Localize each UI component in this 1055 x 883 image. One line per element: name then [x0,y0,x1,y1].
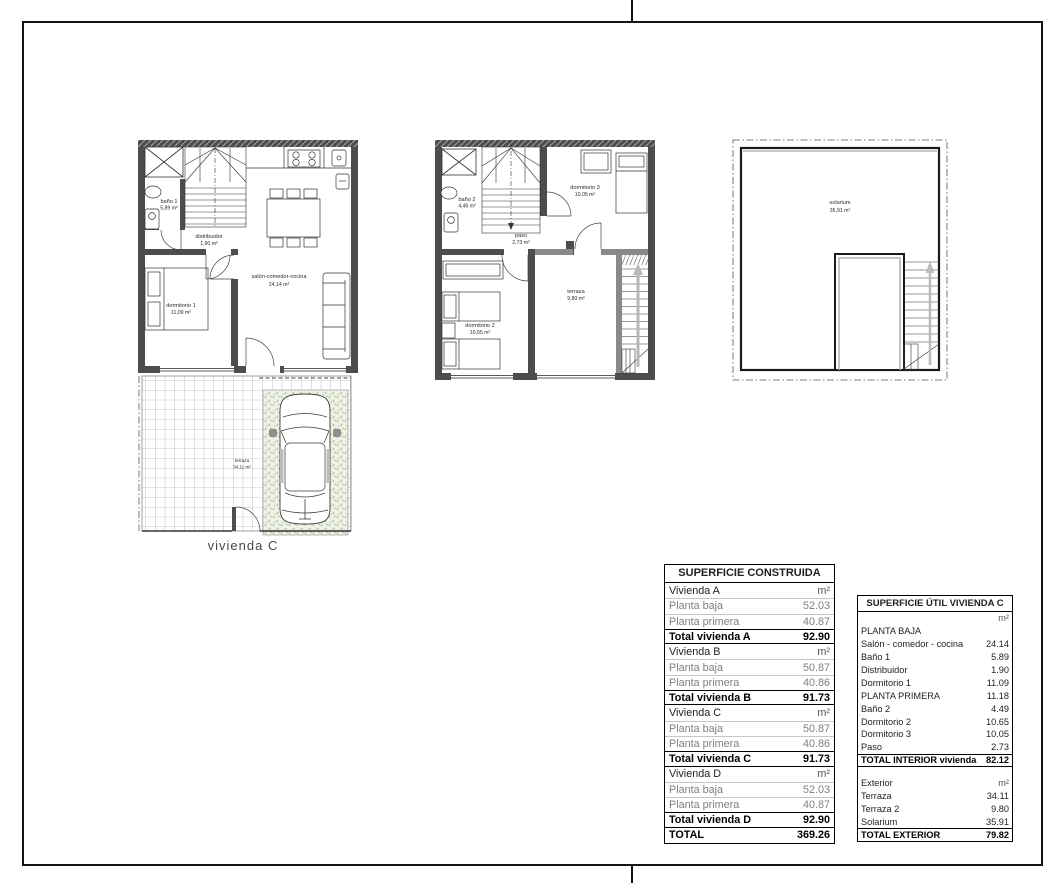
table-title: SUPERFICIE ÚTIL VIVIENDA C [858,596,1012,612]
table-row: TOTAL369.26 [665,828,834,843]
room-area: 5,89 m² [160,206,178,212]
table-row: Vivienda Dm² [665,767,834,782]
stair-void [835,254,904,370]
room-area: 11,09 m² [171,310,191,316]
table-row: Planta primera40.86 [665,675,834,690]
table-row: Planta baja50.87 [665,659,834,674]
dining-table [267,189,320,247]
sofa [323,273,350,359]
stairs [482,147,540,233]
table-row: Baño 15.89 [858,651,1012,664]
table-row: Planta baja52.03 [665,598,834,613]
fold-mark-bottom [631,866,633,883]
garden-plan: terraza 34,11 m² [136,371,360,537]
room-area: 34,11 m² [233,465,251,470]
fold-mark-top [631,0,633,21]
table-row: Vivienda Bm² [665,644,834,659]
table-row: Planta primera40.86 [665,736,834,751]
room-label: dormitorio 1 [166,303,196,309]
window [451,373,513,380]
table-row: Total vivienda B91.73 [665,690,834,705]
car-top-view [269,394,341,524]
room-label: terraza [235,458,250,463]
table-row: Solarium35.91 [858,815,1012,828]
drawing-sheet: baño 1 5,89 m² distribuidor 1,90 m² dorm… [0,0,1055,883]
stairs [185,147,246,227]
room-label: baño 1 [160,199,177,205]
floor-plan-planta-primera: baño 2 4,49 m² dormitorio 3 10,05 m² pas… [433,137,657,385]
table-row: Vivienda Am² [665,583,834,598]
table-superficie-util: SUPERFICIE ÚTIL VIVIENDA C m² PLANTA BAJ… [857,595,1013,842]
table-row: Planta primera40.87 [665,797,834,812]
room-label: dormitorio 3 [570,185,600,191]
table-row: PLANTA BAJA [858,625,1012,638]
closet [145,147,183,177]
table-row: Terraza 29.80 [858,802,1012,815]
table-row: Terraza34.11 [858,790,1012,803]
single-bed [442,339,500,369]
wardrobe [581,150,611,173]
room-area: 10,65 m² [470,330,491,336]
single-bed [442,292,500,321]
table-row: Planta primera40.87 [665,614,834,629]
window [537,373,615,380]
floor-plan-solarium: solarium 35,91 m² [728,137,952,385]
nightstand [442,323,455,338]
room-area: 10,05 m² [575,192,596,198]
room-label: dormitorio 2 [465,323,495,329]
table-row: Total vivienda A92.90 [665,629,834,644]
table-row: Salón - comedor - cocina24.14 [858,638,1012,651]
table-row: Dormitorio 310.05 [858,728,1012,741]
floor-plan-planta-baja: baño 1 5,89 m² distribuidor 1,90 m² dorm… [136,137,360,381]
toilet [145,209,159,229]
table-row: Baño 24.49 [858,702,1012,715]
plan-caption: vivienda C [190,538,296,553]
table-row: Dormitorio 210.65 [858,715,1012,728]
stove [288,150,320,167]
table-spacer [858,767,1012,777]
table-row: Exteriorm² [858,777,1012,790]
room-area: 9,80 m² [567,296,585,302]
room-area: 24,14 m² [269,282,290,288]
room-label: terraza [567,289,585,295]
toilet [444,213,458,232]
table-row: Planta baja52.03 [665,782,834,797]
room-area: 4,49 m² [458,204,476,210]
wall-appliance [336,174,349,189]
table-superficie-construida: SUPERFICIE CONSTRUIDA Vivienda Am² Plant… [664,564,835,844]
bathroom-sink [441,187,457,199]
table-row: Paso2.73 [858,741,1012,754]
room-area: 2,73 m² [512,240,530,246]
table-row: Planta baja50.87 [665,721,834,736]
table-row: Total vivienda C91.73 [665,751,834,766]
room-area: 1,90 m² [200,241,218,247]
terrace-walls [535,249,648,373]
table-row: m² [858,612,1012,625]
table-row: Dormitorio 111.09 [858,676,1012,689]
room-label: baño 2 [458,197,475,203]
room-label: salón-comedor-cocina [251,274,307,280]
room-label: paso [515,233,527,239]
single-bed [616,153,647,213]
kitchen-sink [332,150,346,166]
double-bed [145,268,208,330]
table-row: TOTAL EXTERIOR79.82 [858,828,1012,841]
wardrobe [443,261,503,279]
table-row: Distribuidor1.90 [858,664,1012,677]
room-area: 35,91 m² [830,208,851,214]
room-label: distribuidor [195,234,222,240]
table-row: Total vivienda D92.90 [665,812,834,827]
door-opening [231,255,238,279]
table-title: SUPERFICIE CONSTRUIDA [665,565,834,583]
bathroom-sink [145,186,161,198]
table-row: Vivienda Cm² [665,705,834,720]
table-row: PLANTA PRIMERA11.18 [858,689,1012,702]
table-row: TOTAL INTERIOR vivienda82.12 [858,754,1012,767]
closet [442,149,476,175]
room-label: solarium [829,200,850,206]
up-arrow [633,263,643,367]
